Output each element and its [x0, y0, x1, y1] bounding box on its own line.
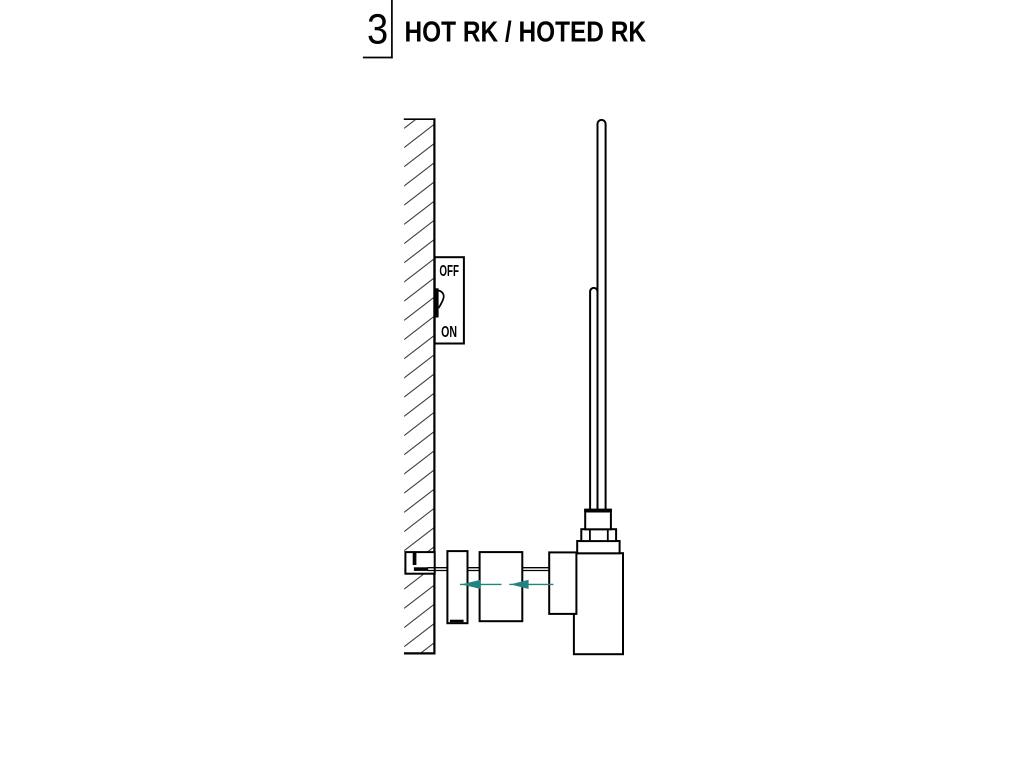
svg-text:HOT RK / HOTED RK: HOT RK / HOTED RK	[405, 17, 647, 49]
svg-text:ON: ON	[441, 324, 457, 341]
svg-text:3: 3	[367, 6, 388, 53]
svg-text:OFF: OFF	[439, 263, 459, 280]
